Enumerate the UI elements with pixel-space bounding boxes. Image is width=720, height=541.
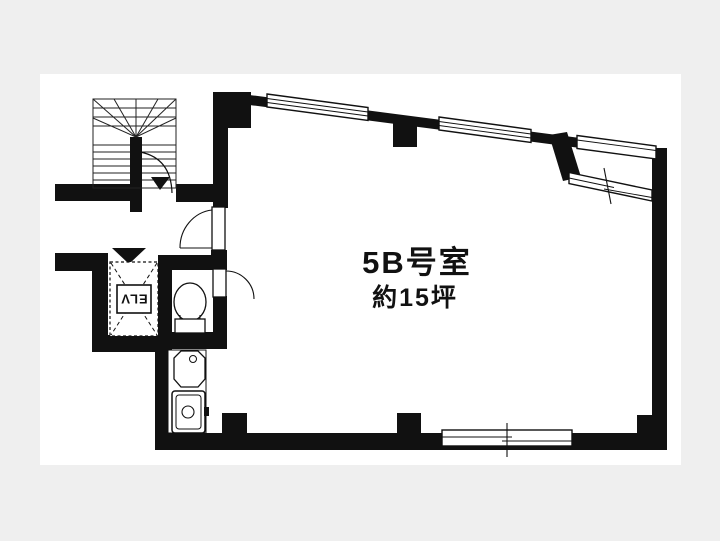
counter: [168, 350, 209, 433]
elevator-label: ELV: [120, 292, 147, 307]
room-area-label: 約15坪: [372, 283, 458, 312]
toilet: [174, 283, 206, 333]
room-name-label: 5B号室: [362, 245, 472, 280]
kitchen-sink: [172, 391, 209, 433]
floorplan-viewer: ELV 5B号室 約15坪: [0, 0, 720, 541]
faucet-nub: [204, 407, 209, 416]
floorplan-drawing: ELV 5B号室 約15坪: [0, 0, 720, 541]
wash-basin: [174, 351, 205, 387]
